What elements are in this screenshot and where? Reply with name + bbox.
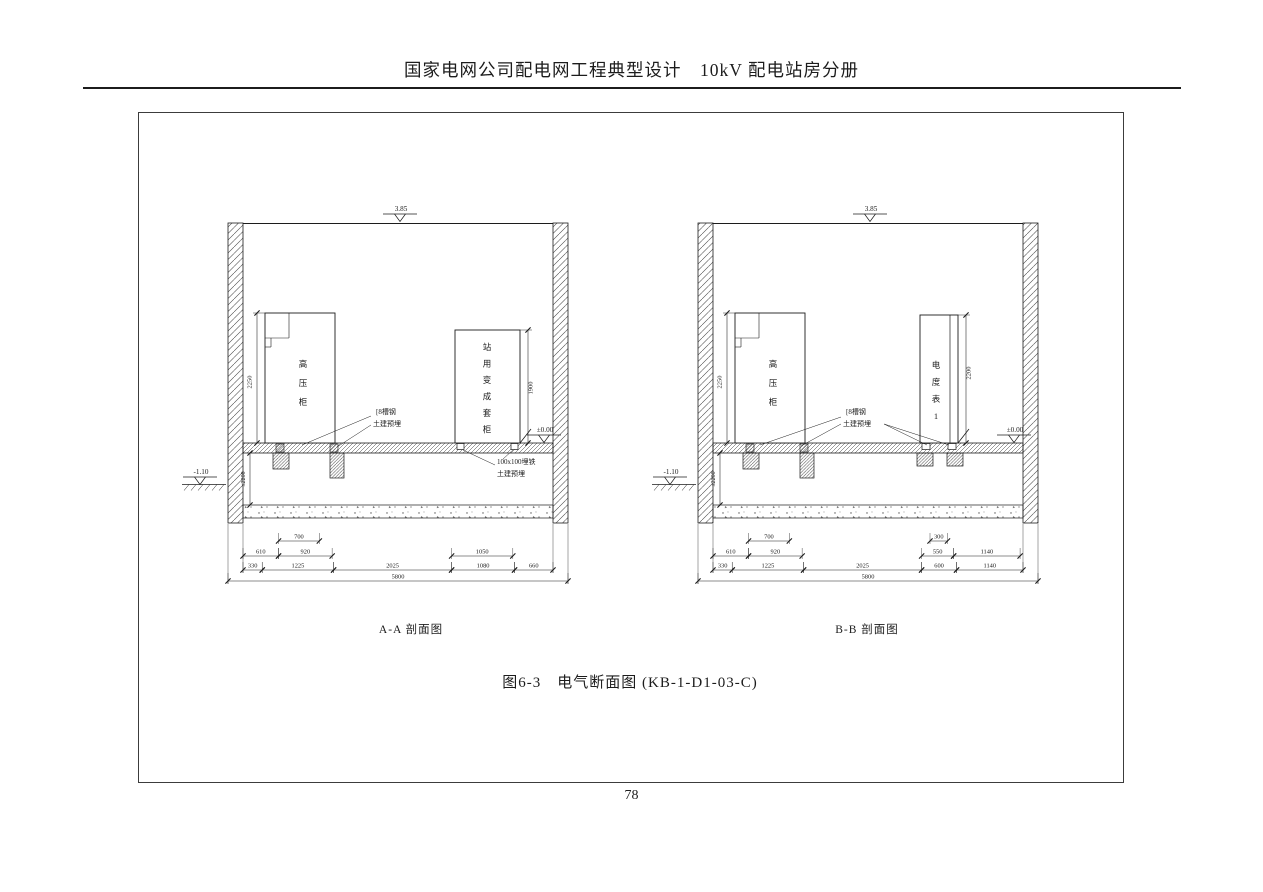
dim-label: 330 [718,563,728,570]
elevation-label: 3.85 [865,205,878,213]
elevation-label: 3.85 [395,205,408,213]
dim-label: 700 [764,534,774,541]
channel-steel-note: 土建预埋 [373,419,401,428]
level-triangle [195,477,206,485]
dim-label: 610 [726,549,736,556]
dim-label: 1225 [292,563,305,570]
channel-steel-note: [8槽钢 [846,407,866,416]
elevation-label: ±0.00 [1007,426,1024,434]
channel-embed [800,444,808,452]
footing-pad [330,453,344,478]
dim-label: 920 [301,549,311,556]
embed-iron-note: 100x100埋铁 [497,457,536,466]
dim-label: 5800 [862,574,875,581]
ground-hatch [219,485,224,491]
dim-label: 300 [934,534,944,541]
dim-label: 700 [294,534,304,541]
section-drawings: 3.85±0.00-1.10≤2200高压柜2250站用变成套柜1900[8槽钢… [0,0,1263,892]
dim-label: 1140 [984,563,997,570]
underfloor-depth-label: ≤2200 [711,471,717,486]
channel-steel-note: [8槽钢 [376,407,396,416]
footing-pad [743,453,759,469]
foundation-slab [243,505,553,518]
ground-hatch [682,485,687,491]
dim-label: 1050 [476,549,489,556]
ground-hatch [654,485,659,491]
floor-slab [243,443,553,453]
ground-hatch [205,485,210,491]
footing-pad [947,453,963,466]
ground-hatch [668,485,673,491]
dim-label: 600 [934,563,944,570]
floor-slab [713,443,1023,453]
level-triangle [865,214,876,222]
channel-steel-note: 土建预埋 [843,419,871,428]
channel-embed [276,444,284,452]
cabinet-height-label: 2250 [717,376,724,389]
hv-cabinet-label: 高压柜 [299,359,308,407]
figure-title: 图6-3 电气断面图 (KB-1-D1-03-C) [420,671,840,692]
level-triangle [665,477,676,485]
ground-hatch [689,485,694,491]
dim-label: 2025 [386,563,399,570]
foundation-slab [713,505,1023,518]
dim-label: 2025 [856,563,869,570]
right-wall [553,223,568,523]
dim-label: 550 [933,549,943,556]
dim-label: 1140 [981,549,994,556]
ground-hatch [184,485,189,491]
level-triangle [395,214,406,222]
footing-pad [800,453,814,478]
dim-label: 1080 [477,563,490,570]
dim-label: 660 [529,563,539,570]
cabinet-foot [457,444,464,450]
level-triangle [1009,435,1020,443]
dim-label: 920 [771,549,781,556]
channel-embed [746,444,754,452]
section-b-caption: B-B 剖面图 [767,621,967,637]
ground-hatch [675,485,680,491]
embed-iron-note: 土建预埋 [497,469,525,478]
footing-pad [273,453,289,469]
underfloor-depth-label: ≤2200 [241,471,247,486]
dim-label: 610 [256,549,266,556]
elevation-label: ±0.00 [537,426,554,434]
channel-embed [330,444,338,452]
section-a-caption: A-A 剖面图 [311,621,511,637]
elevation-label: -1.10 [664,468,679,476]
document-page: 国家电网公司配电网工程典型设计 10kV 配电站房分册 3.85±0.00-1.… [0,0,1263,892]
cabinet-height-label: 2250 [247,376,254,389]
dim-label: 5800 [392,574,405,581]
ground-hatch [661,485,666,491]
level-triangle [539,435,550,443]
cabinet-height-label: 2200 [966,367,973,380]
ground-hatch [191,485,196,491]
ground-hatch [198,485,203,491]
footing-pad [917,453,933,466]
dim-label: 1225 [762,563,775,570]
page-number: 78 [0,788,1263,804]
ground-hatch [212,485,217,491]
hv-cabinet-label: 高压柜 [769,359,778,407]
elevation-label: -1.10 [194,468,209,476]
cabinet-height-label: 1900 [528,382,535,395]
cabinet-foot [511,444,518,450]
right-wall [1023,223,1038,523]
dim-label: 330 [248,563,258,570]
cabinet-foot [948,444,956,450]
